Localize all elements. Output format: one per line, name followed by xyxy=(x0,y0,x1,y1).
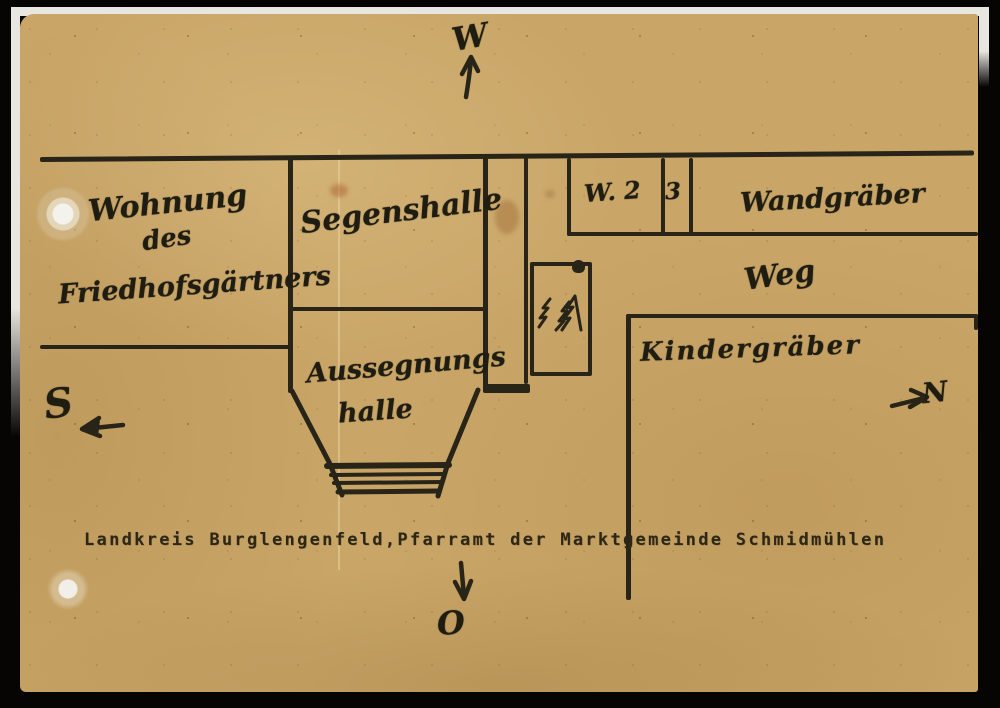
punch-hole-top xyxy=(33,184,93,244)
tree-plot-box xyxy=(530,262,592,376)
ink-stain xyxy=(330,184,348,197)
corridor-right-wall xyxy=(524,156,528,384)
ink-stain xyxy=(545,190,555,198)
building-divider-wall xyxy=(290,307,488,311)
compass-north-label: N xyxy=(920,375,949,410)
gardener-house-bottom-line xyxy=(40,345,290,349)
wall-graves-cell-w2: W. 2 xyxy=(583,175,642,208)
children-graves-corner-tick xyxy=(974,314,978,330)
children-graves-top-line xyxy=(626,314,978,318)
typed-caption: Landkreis Burglengenfeld,Pfarramt der Ma… xyxy=(84,530,886,550)
scan-mat-edge-left xyxy=(11,7,20,437)
children-graves-left-wall xyxy=(626,314,631,600)
wall-graves-bottom-line xyxy=(567,232,978,236)
wall-graves-divider-2 xyxy=(689,158,693,236)
compass-east-label: O xyxy=(436,603,466,643)
ink-blot xyxy=(572,260,585,273)
wall-graves-cell-3: 3 xyxy=(664,178,681,206)
punch-hole-bottom xyxy=(46,567,90,611)
scan-mat-edge-right xyxy=(979,7,989,87)
scanned-document: W S N O Wohnung des Friedhofsgärtners Se… xyxy=(0,0,1000,708)
wall-graves-left-wall xyxy=(567,158,571,236)
corridor-bottom-wall xyxy=(483,384,530,393)
compass-west-label: W xyxy=(449,15,491,59)
compass-south-label: S xyxy=(41,378,76,429)
lower-hall-label-line2: halle xyxy=(337,393,414,429)
